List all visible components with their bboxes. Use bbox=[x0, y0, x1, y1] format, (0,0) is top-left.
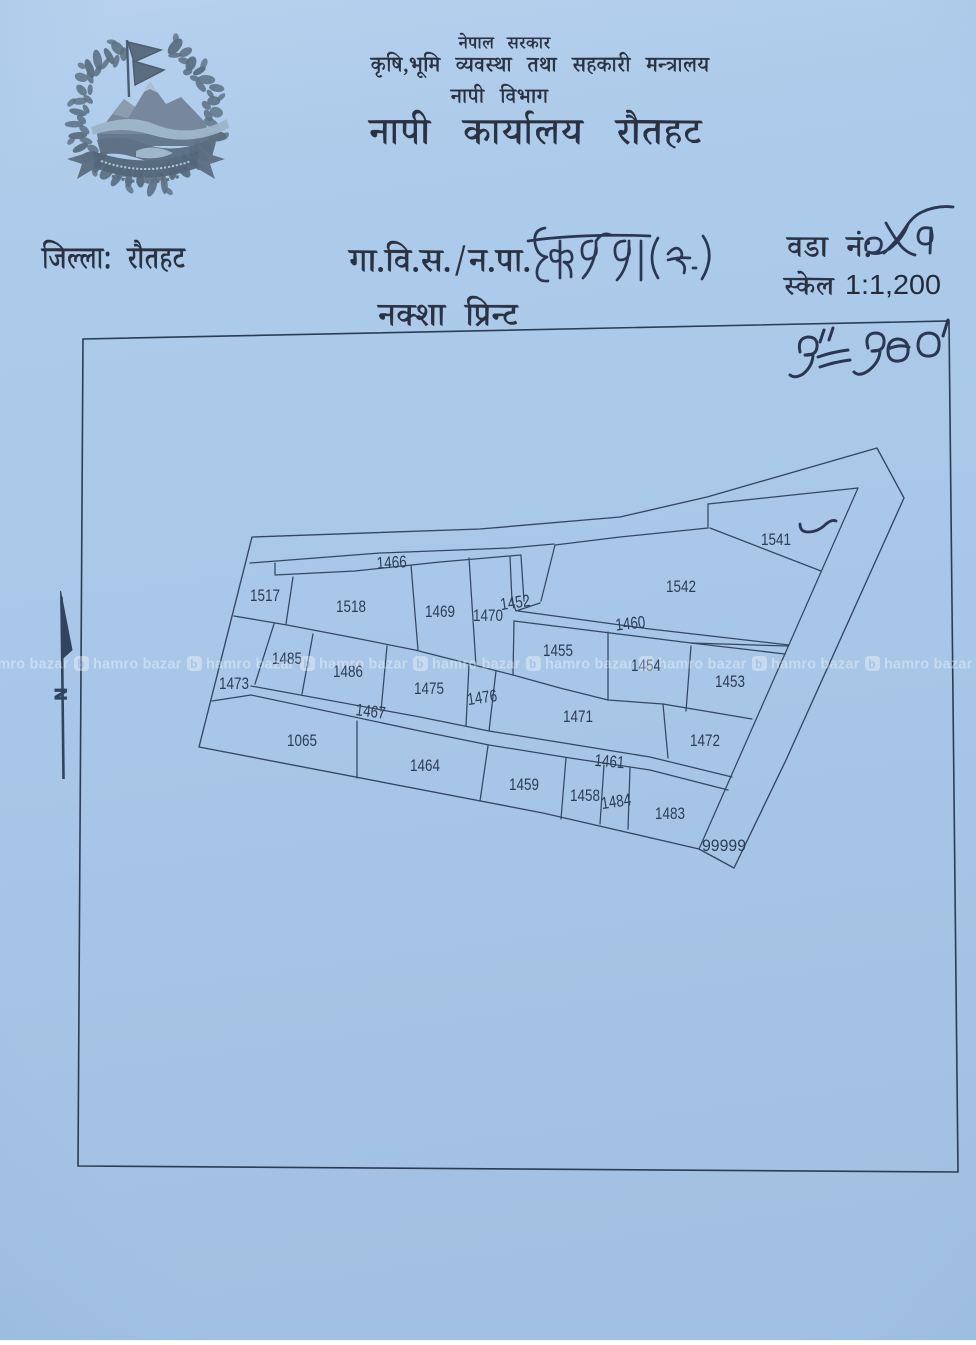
svg-text:b: b bbox=[303, 659, 310, 671]
svg-text:b: b bbox=[755, 659, 762, 671]
svg-text:1460: 1460 bbox=[615, 613, 647, 635]
svg-text:1483: 1483 bbox=[655, 804, 685, 823]
svg-text:hamro bazar: hamro bazar bbox=[319, 657, 408, 673]
svg-text:1473: 1473 bbox=[219, 674, 249, 693]
svg-text:hamro bazar: hamro bazar bbox=[93, 657, 182, 673]
svg-text:1542: 1542 bbox=[666, 577, 696, 596]
svg-text:1517: 1517 bbox=[250, 586, 280, 605]
svg-text:hamro bazar: hamro bazar bbox=[432, 657, 521, 673]
svg-text:1541: 1541 bbox=[761, 530, 791, 549]
svg-text:b: b bbox=[868, 659, 875, 671]
svg-text:hamro bazar: hamro bazar bbox=[0, 657, 69, 673]
svg-text:1464: 1464 bbox=[410, 756, 440, 775]
svg-text:hamro bazar: hamro bazar bbox=[206, 657, 295, 673]
svg-text:99999: 99999 bbox=[702, 836, 746, 855]
svg-text:hamro bazar: hamro bazar bbox=[884, 657, 973, 673]
svg-text:1472: 1472 bbox=[690, 731, 720, 750]
svg-text:1065: 1065 bbox=[287, 731, 317, 750]
svg-text:1467: 1467 bbox=[355, 700, 387, 723]
svg-text:b: b bbox=[190, 659, 197, 671]
svg-text:1469: 1469 bbox=[425, 602, 455, 621]
svg-text:1:1,200: 1:1,200 bbox=[845, 269, 941, 300]
svg-text:hamro bazar: hamro bazar bbox=[771, 657, 860, 673]
svg-text:1461: 1461 bbox=[594, 751, 625, 773]
svg-text:hamro bazar: hamro bazar bbox=[545, 657, 634, 673]
svg-text:1466: 1466 bbox=[376, 552, 407, 573]
svg-text:b: b bbox=[529, 659, 536, 671]
svg-text:1475: 1475 bbox=[414, 679, 444, 698]
svg-text:1458: 1458 bbox=[570, 786, 600, 805]
svg-text:1471: 1471 bbox=[563, 707, 593, 726]
svg-text:b: b bbox=[642, 659, 649, 671]
svg-text:b: b bbox=[416, 659, 423, 671]
svg-text:hamro bazar: hamro bazar bbox=[658, 657, 747, 673]
svg-text:1518: 1518 bbox=[336, 597, 366, 616]
svg-text:1459: 1459 bbox=[509, 775, 539, 794]
svg-text:N: N bbox=[51, 688, 70, 700]
svg-text:1453: 1453 bbox=[715, 672, 745, 691]
svg-text:1470: 1470 bbox=[473, 606, 503, 625]
svg-text:b: b bbox=[77, 659, 84, 671]
